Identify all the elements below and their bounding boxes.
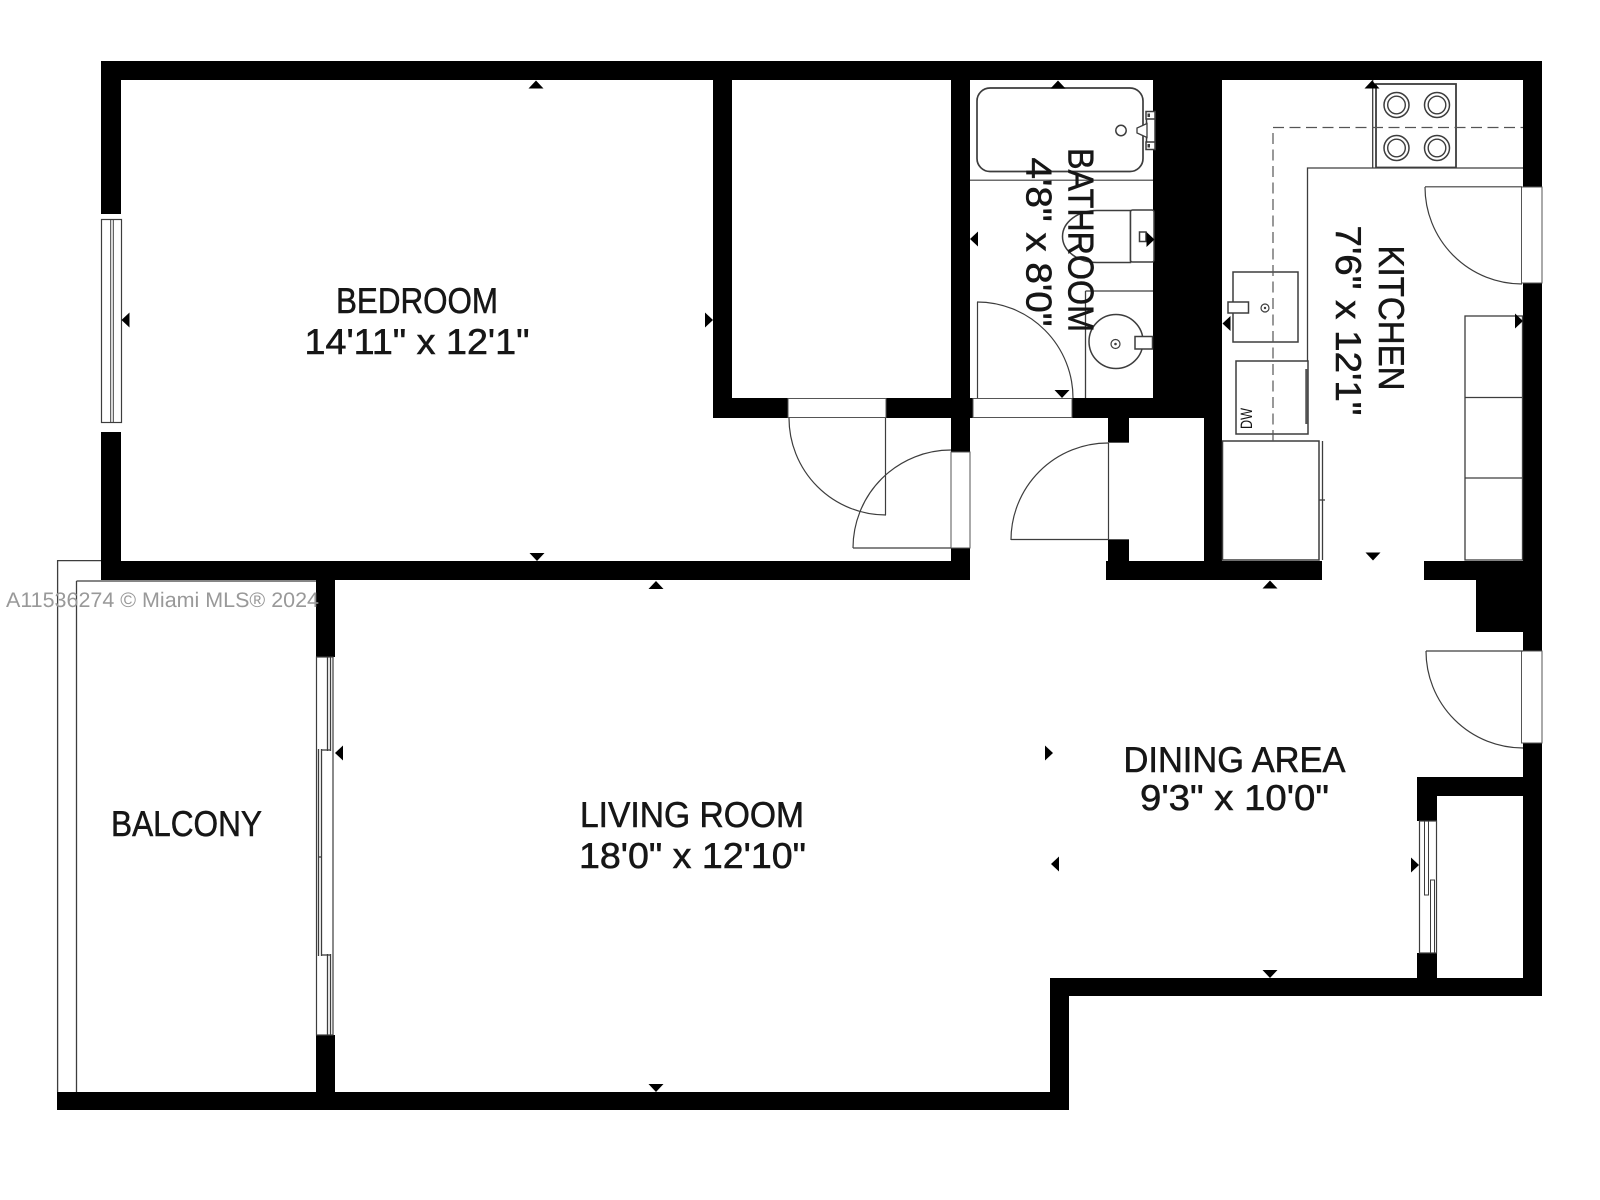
svg-text:LIVING ROOM: LIVING ROOM [580, 794, 804, 835]
svg-text:18'0" x 12'10": 18'0" x 12'10" [579, 835, 806, 876]
svg-text:KITCHEN: KITCHEN [1371, 246, 1412, 391]
svg-text:14'11" x 12'1": 14'11" x 12'1" [305, 321, 530, 362]
svg-text:9'3" x 10'0": 9'3" x 10'0" [1140, 777, 1329, 818]
svg-text:DINING AREA: DINING AREA [1124, 739, 1346, 780]
svg-text:BALCONY: BALCONY [111, 803, 262, 844]
svg-text:A11536274 © Miami MLS® 2024: A11536274 © Miami MLS® 2024 [6, 589, 319, 612]
svg-text:BEDROOM: BEDROOM [336, 280, 498, 321]
svg-text:BATHROOM: BATHROOM [1061, 148, 1102, 332]
svg-text:4'8" x 8'0": 4'8" x 8'0" [1019, 158, 1060, 327]
svg-text:DW: DW [1238, 408, 1256, 429]
svg-text:7'6" x 12'1": 7'6" x 12'1" [1328, 226, 1369, 416]
